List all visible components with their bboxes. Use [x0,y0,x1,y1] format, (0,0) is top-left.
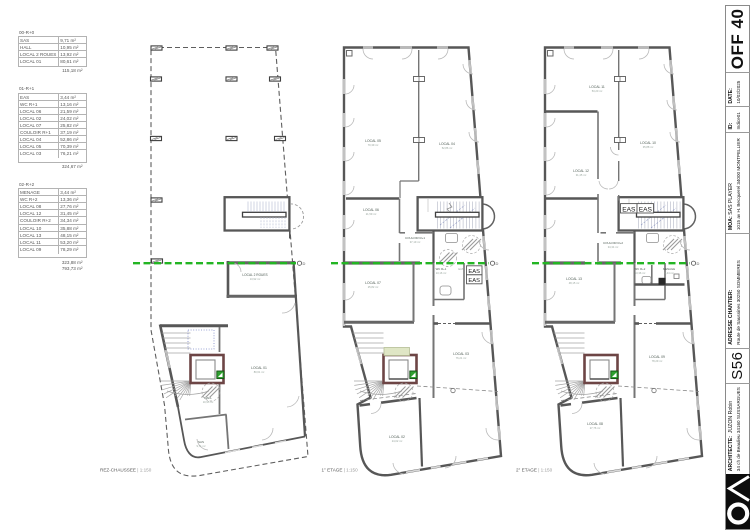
svg-text:21,59 m²: 21,59 m² [366,212,377,216]
svg-text:EAS: EAS [639,206,653,213]
svg-text:76,21 m²: 76,21 m² [456,356,467,360]
svg-text:53,20 m²: 53,20 m² [592,89,603,93]
svg-text:WC R+1: WC R+1 [436,267,447,271]
svg-text:10,95 m²: 10,95 m² [203,400,214,404]
svg-text:3,44 m²: 3,44 m² [664,271,673,275]
svg-text:D: D [303,261,306,266]
svg-text:EAS: EAS [468,269,480,275]
svg-text:80,61 m²: 80,61 m² [254,370,265,374]
svg-text:LOCAL 05: LOCAL 05 [365,139,381,143]
svg-text:LOCAL 12: LOCAL 12 [573,169,589,173]
svg-text:LOCAL 2 ROUES: LOCAL 2 ROUES [242,273,267,277]
svg-text:LOCAL 04: LOCAL 04 [439,142,455,146]
svg-text:48,15 m²: 48,15 m² [569,281,580,285]
svg-text:SAS: SAS [198,440,204,444]
svg-text:HALL: HALL [204,396,212,400]
svg-text:COULOIR R+1: COULOIR R+1 [405,236,425,240]
svg-text:LOCAL 10: LOCAL 10 [640,141,656,145]
svg-text:LOCAL 03: LOCAL 03 [453,352,469,356]
svg-text:13,16 m²: 13,16 m² [436,271,447,275]
svg-text:70,39 m²: 70,39 m² [368,143,379,147]
svg-text:LOCAL 08: LOCAL 08 [587,422,603,426]
svg-text:1° ETAGE | 1:150: 1° ETAGE | 1:150 [322,468,359,473]
svg-text:EAS: EAS [622,206,636,213]
svg-text:LOCAL 13: LOCAL 13 [566,277,582,281]
svg-text:52,86 m²: 52,86 m² [442,146,453,150]
svg-text:78,29 m²: 78,29 m² [652,359,663,363]
svg-text:MENAGE: MENAGE [663,267,675,271]
svg-text:LOCAL 02: LOCAL 02 [389,435,405,439]
svg-text:D: D [697,261,700,266]
svg-text:EAS: EAS [458,267,463,271]
svg-text:37,19 m²: 37,19 m² [410,240,421,244]
svg-text:13,36 m²: 13,36 m² [635,271,646,275]
svg-text:13,92 m²: 13,92 m² [250,277,261,281]
svg-text:LOCAL 07: LOCAL 07 [365,281,381,285]
svg-text:24,02 m²: 24,02 m² [392,439,403,443]
svg-text:D: D [496,261,499,266]
svg-text:9,71 m²: 9,71 m² [196,444,205,448]
svg-text:25,82 m²: 25,82 m² [368,285,379,289]
svg-text:LOCAL 06: LOCAL 06 [363,208,379,212]
svg-text:LOCAL 01: LOCAL 01 [251,366,267,370]
svg-text:35,88 m²: 35,88 m² [643,145,654,149]
svg-text:27,76 m²: 27,76 m² [590,426,601,430]
svg-text:EAS: EAS [468,278,480,284]
svg-text:WC R+2: WC R+2 [635,267,646,271]
svg-text:REZ-CHAUSSEE | 1:150: REZ-CHAUSSEE | 1:150 [100,468,152,473]
svg-text:31,45 m²: 31,45 m² [576,173,587,177]
svg-text:LOCAL 11: LOCAL 11 [589,85,605,89]
svg-text:LOCAL 09: LOCAL 09 [649,355,665,359]
svg-text:34,34 m²: 34,34 m² [608,245,619,249]
svg-text:COULOIR R+2: COULOIR R+2 [603,241,623,245]
svg-text:2° ETAGE | 1:150: 2° ETAGE | 1:150 [516,468,553,473]
